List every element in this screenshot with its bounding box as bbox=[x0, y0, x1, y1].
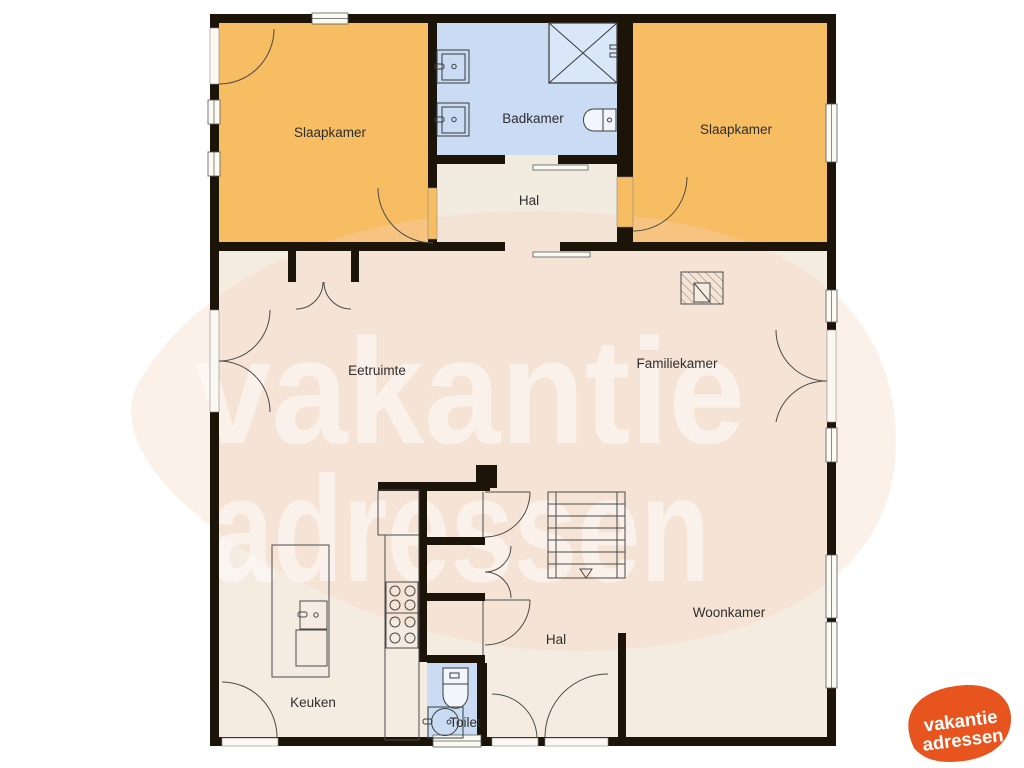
floorplan-page: vakantie adressen bbox=[0, 0, 1024, 768]
room-label-slaapkamer-left: Slaapkamer bbox=[294, 125, 367, 140]
window bbox=[312, 13, 348, 24]
room-label-keuken: Keuken bbox=[290, 695, 336, 710]
room-label-woonkamer: Woonkamer bbox=[693, 605, 766, 620]
room-label-hal-upper: Hal bbox=[519, 193, 539, 208]
room-label-familiekamer: Familiekamer bbox=[636, 356, 718, 371]
brand-logo: vakantie adressen bbox=[908, 685, 1011, 762]
room-label-slaapkamer-right: Slaapkamer bbox=[700, 122, 773, 137]
room-label-eetruimte: Eetruimte bbox=[348, 363, 406, 378]
fireplace-icon bbox=[681, 272, 723, 304]
shower-icon bbox=[549, 23, 617, 83]
window bbox=[208, 100, 220, 124]
window bbox=[826, 104, 837, 162]
watermark-line2: adressen bbox=[210, 445, 710, 613]
room-label-badkamer: Badkamer bbox=[502, 111, 564, 126]
toilet-icon bbox=[584, 109, 617, 131]
toilet-icon bbox=[443, 668, 468, 708]
window bbox=[826, 622, 837, 688]
window bbox=[208, 152, 220, 176]
room-label-toilet: Toilet bbox=[449, 715, 481, 730]
window bbox=[826, 290, 837, 322]
window bbox=[826, 428, 837, 462]
window bbox=[433, 735, 481, 747]
window bbox=[826, 555, 837, 618]
room-label-hal-lower: Hal bbox=[546, 632, 566, 647]
room-slaapkamer-right-floor bbox=[633, 23, 827, 251]
floorplan-canvas: vakantie adressen bbox=[0, 0, 1024, 768]
